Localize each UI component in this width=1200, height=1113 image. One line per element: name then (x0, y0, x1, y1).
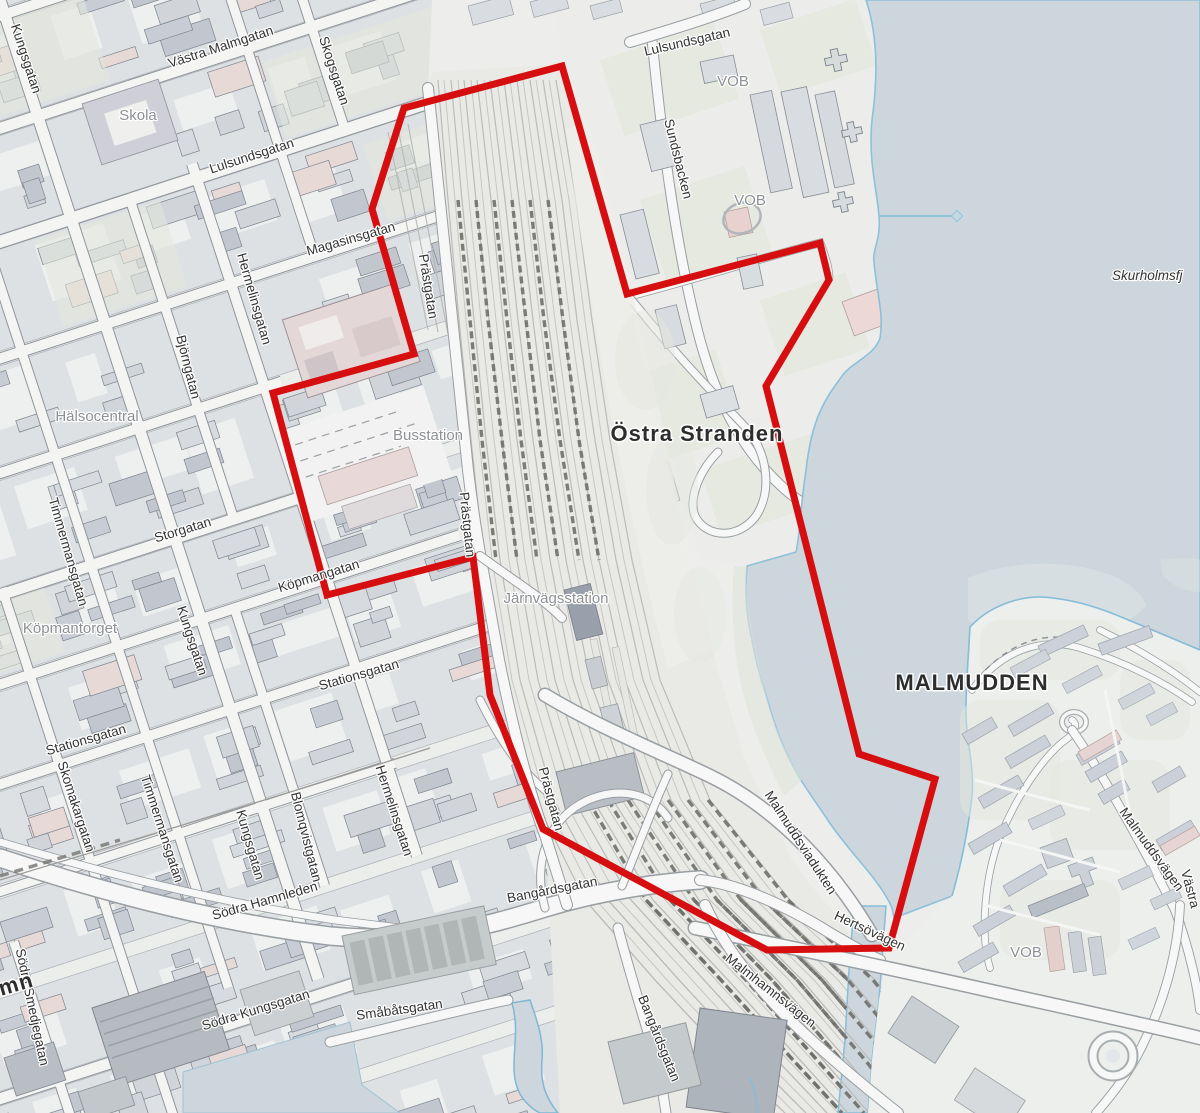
svg-text:Hälsocentral: Hälsocentral (55, 408, 138, 425)
svg-text:Busstation: Busstation (393, 427, 463, 444)
svg-text:MALMUDDEN: MALMUDDEN (895, 670, 1048, 695)
svg-text:Skurholmsfj: Skurholmsfj (1112, 268, 1184, 283)
svg-text:Skola: Skola (119, 107, 157, 124)
svg-text:VOB: VOB (1010, 944, 1042, 961)
svg-text:VOB: VOB (717, 73, 749, 90)
svg-text:Järnvägsstation: Järnvägsstation (503, 590, 608, 607)
svg-text:Köpmantorget: Köpmantorget (23, 620, 118, 637)
svg-text:Östra Stranden: Östra Stranden (611, 421, 784, 446)
svg-text:VOB: VOB (734, 192, 766, 209)
